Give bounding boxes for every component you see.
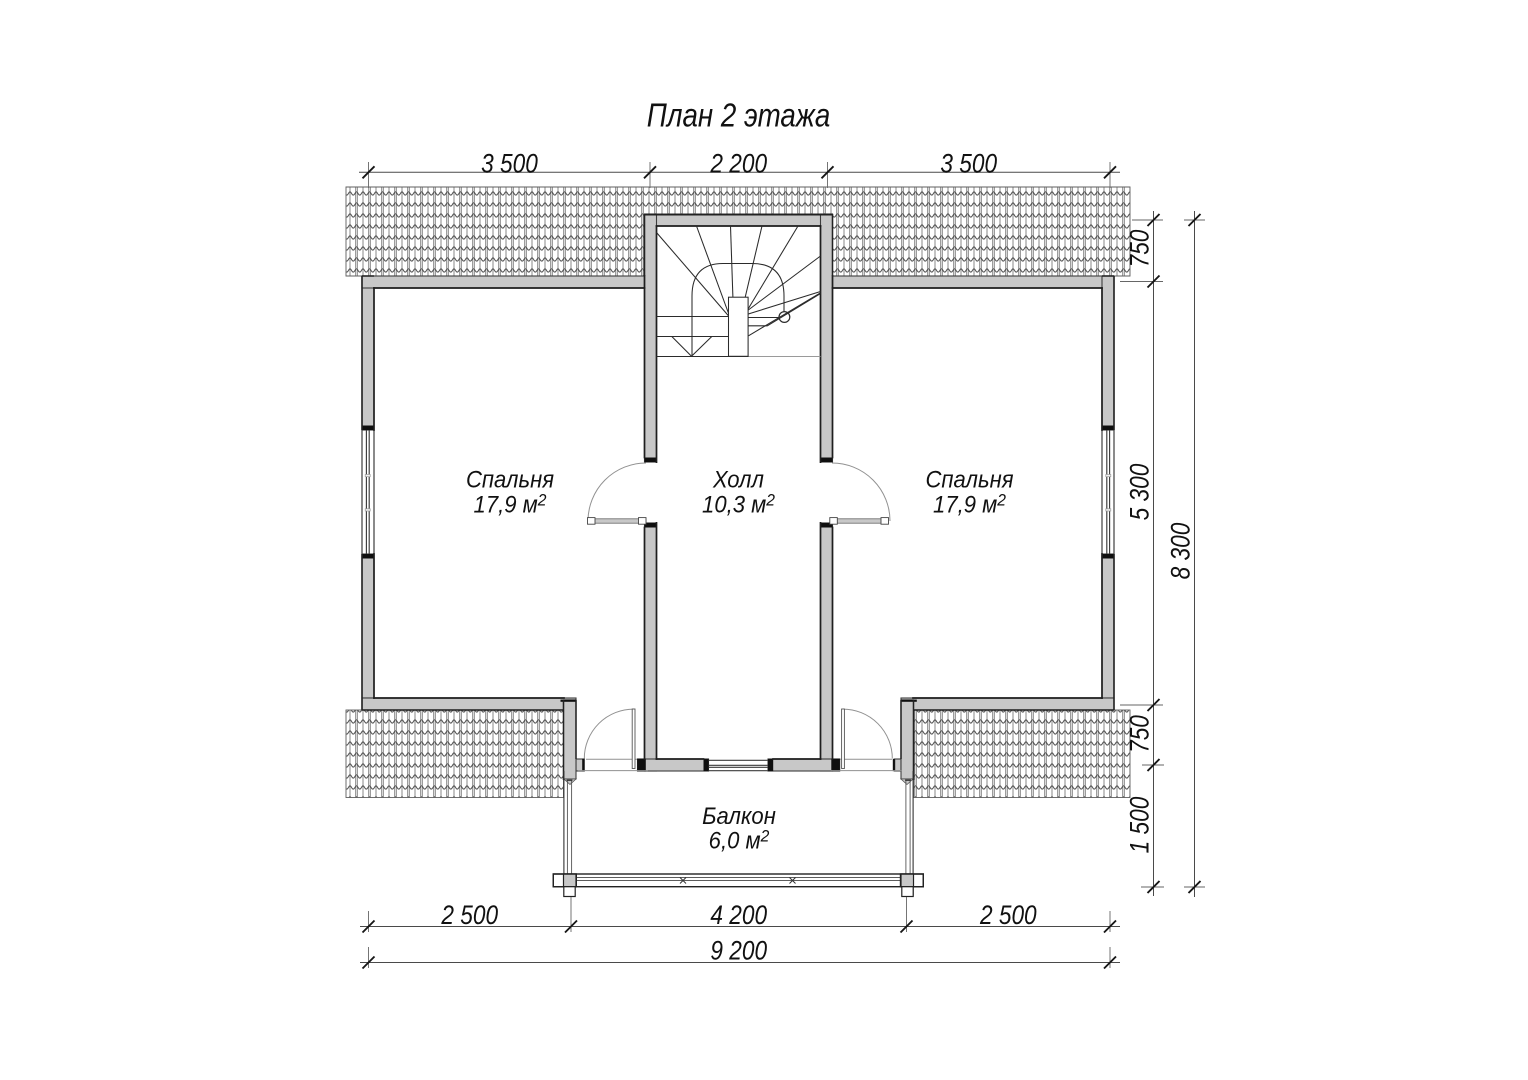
svg-text:17,9 м2: 17,9 м2 — [474, 491, 547, 518]
svg-text:4 200: 4 200 — [710, 901, 767, 930]
svg-text:17,9 м2: 17,9 м2 — [933, 491, 1006, 518]
svg-text:Спальня: Спальня — [466, 466, 554, 493]
svg-text:Балкон: Балкон — [702, 802, 776, 829]
svg-text:6,0 м2: 6,0 м2 — [709, 827, 770, 854]
svg-text:2 500: 2 500 — [440, 901, 498, 930]
svg-text:Спальня: Спальня — [925, 466, 1013, 493]
svg-text:2 200: 2 200 — [709, 150, 767, 179]
svg-text:10,3 м2: 10,3 м2 — [702, 491, 775, 518]
svg-text:Холл: Холл — [712, 466, 764, 493]
svg-text:План 2 этажа: План 2 этажа — [647, 97, 830, 134]
svg-text:3 500: 3 500 — [481, 150, 538, 179]
svg-text:8 300: 8 300 — [1167, 522, 1196, 579]
svg-text:750: 750 — [1126, 229, 1155, 267]
svg-text:750: 750 — [1126, 715, 1155, 753]
svg-text:2 500: 2 500 — [979, 901, 1037, 930]
svg-text:1 500: 1 500 — [1126, 796, 1155, 853]
svg-text:9 200: 9 200 — [710, 937, 767, 966]
svg-text:5 300: 5 300 — [1126, 463, 1155, 520]
svg-text:3 500: 3 500 — [940, 150, 997, 179]
